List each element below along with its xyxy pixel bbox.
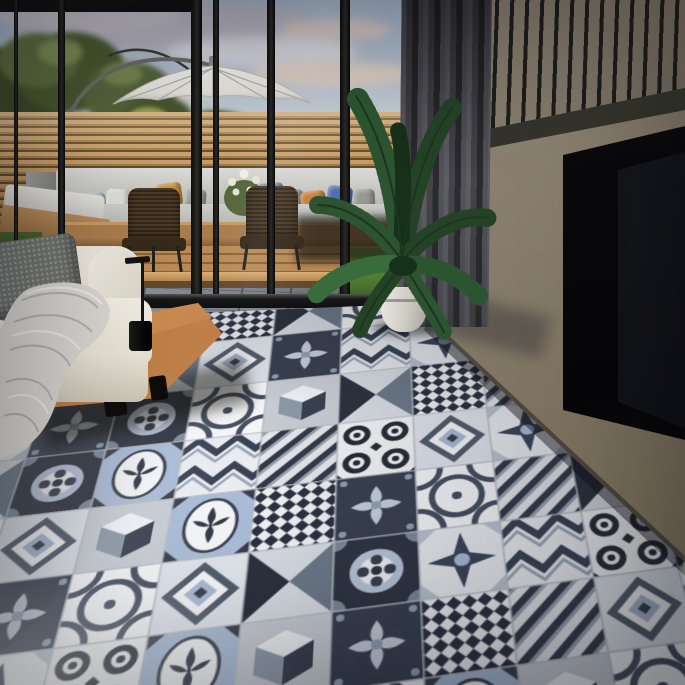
tile-diamond-check: [420, 589, 516, 679]
tile-concentric-diamond: [413, 408, 493, 471]
tile-circle-chain: [336, 416, 415, 480]
tile-cubes-3d: [231, 612, 331, 685]
tile-concentric-diamond: [148, 552, 249, 636]
tile-diagonal-bands: [508, 578, 608, 666]
window-mullion: [213, 0, 219, 308]
tile-concentric-diamond: [593, 567, 685, 653]
tile-damask-dark: [328, 600, 423, 685]
tile-floral-periwinkle: [161, 489, 255, 563]
tile-quatrefoil-lattice: [415, 461, 500, 531]
tile-eight-point-star: [417, 521, 507, 600]
living-room-photo: [0, 0, 685, 685]
throw-blanket: [0, 270, 170, 490]
tile-diamond-check: [248, 480, 336, 553]
tile-medallion: [331, 532, 420, 613]
tile-chevron: [500, 511, 594, 589]
black-cylinder-vase: [129, 321, 152, 351]
window-mullion: [191, 0, 202, 308]
tile-diagonal-bands: [255, 424, 337, 489]
palm-plant: [300, 60, 520, 350]
window-mullion: [267, 0, 275, 308]
tile-damask-dark: [334, 470, 418, 541]
tile-cubes-3d: [262, 374, 340, 432]
tile-hourglass-triangles: [338, 367, 413, 424]
tile-hourglass-triangles: [240, 542, 333, 624]
